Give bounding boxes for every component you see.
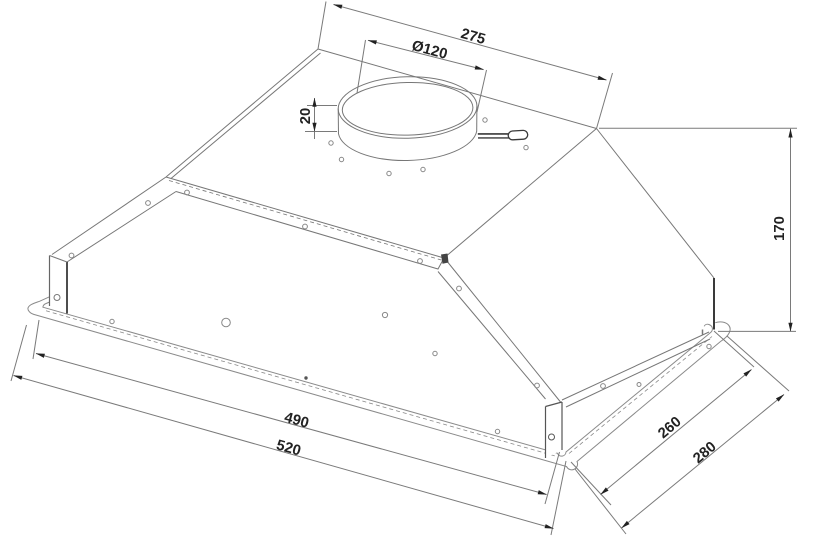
svg-text:170: 170 (772, 216, 788, 241)
svg-text:20: 20 (298, 108, 314, 124)
